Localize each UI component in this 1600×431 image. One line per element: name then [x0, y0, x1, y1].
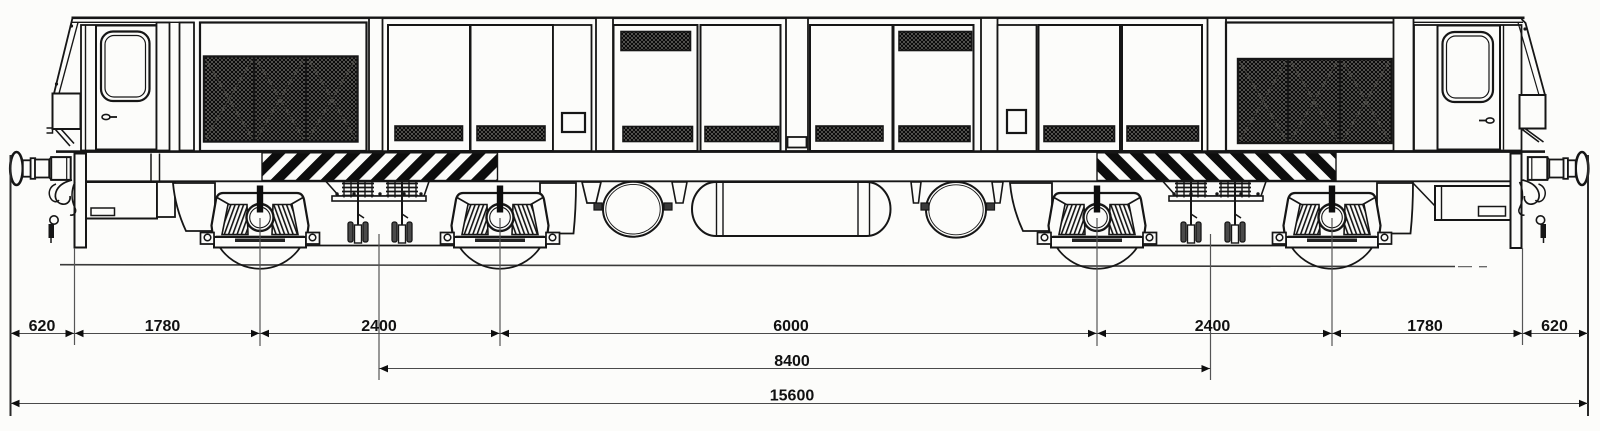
svg-text:620: 620 [1541, 318, 1568, 335]
svg-text:1780: 1780 [145, 318, 181, 335]
svg-text:6000: 6000 [773, 318, 809, 335]
svg-text:620: 620 [29, 318, 56, 335]
svg-text:8400: 8400 [774, 353, 810, 370]
svg-text:2400: 2400 [361, 318, 397, 335]
svg-text:1780: 1780 [1407, 318, 1443, 335]
svg-text:2400: 2400 [1195, 318, 1231, 335]
svg-text:15600: 15600 [770, 388, 815, 405]
